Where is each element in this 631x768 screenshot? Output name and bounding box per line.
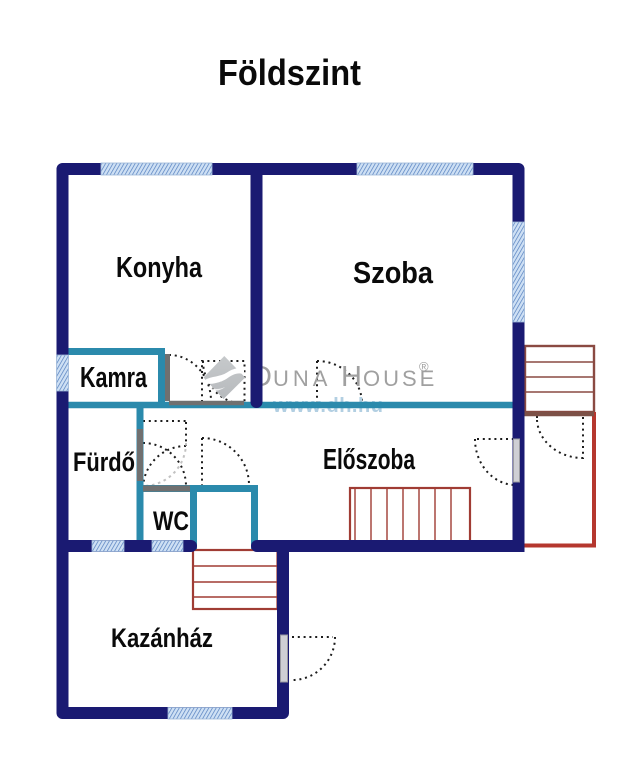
svg-text:Előszoba: Előszoba — [323, 444, 416, 476]
svg-text:H: H — [341, 361, 362, 393]
svg-text:Kamra: Kamra — [80, 362, 148, 394]
svg-text:®: ® — [419, 359, 429, 374]
svg-text:Kazánház: Kazánház — [111, 623, 213, 653]
svg-text:Konyha: Konyha — [116, 252, 203, 284]
svg-text:Földszint: Földszint — [218, 52, 361, 93]
svg-text:WC: WC — [153, 506, 189, 536]
svg-text:Szoba: Szoba — [353, 255, 434, 290]
svg-text:Fürdő: Fürdő — [73, 447, 135, 477]
svg-text:UNA: UNA — [273, 366, 331, 391]
